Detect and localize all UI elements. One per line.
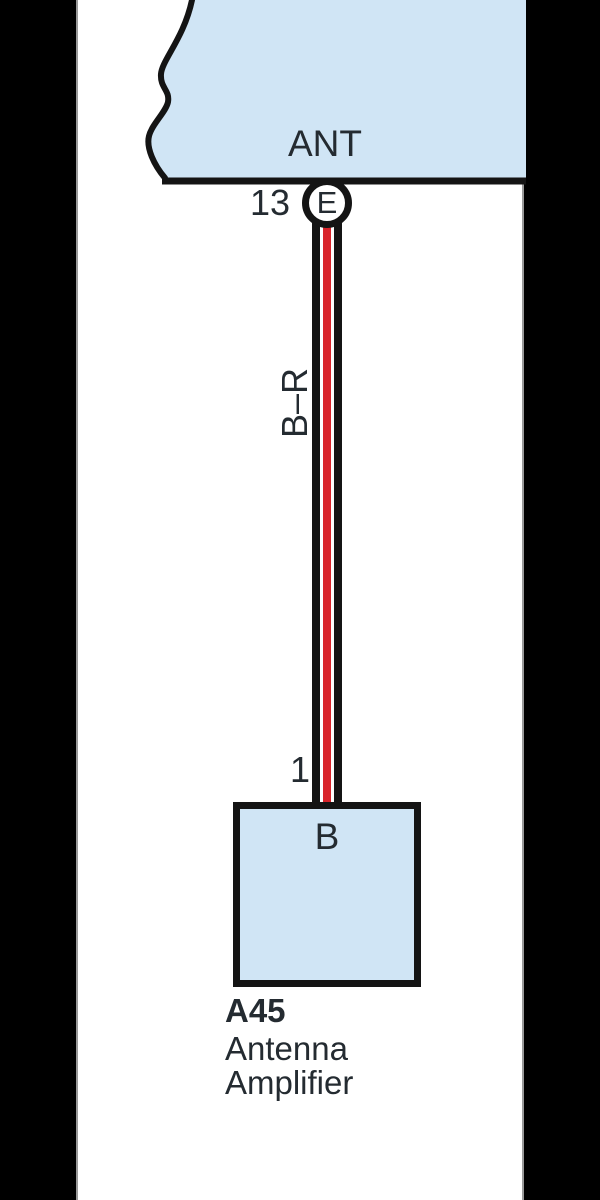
connector-e-circle: E xyxy=(302,178,352,228)
wire-color-code-label: B–R xyxy=(276,336,314,470)
diagram-canvas: ANT B–R E 13 1 B A45 Antenna Amplifier xyxy=(76,0,524,1200)
connector-pin-13-label: 13 xyxy=(220,183,290,223)
component-caption: A45 Antenna Amplifier xyxy=(225,994,353,1100)
component-name-line2: Amplifier xyxy=(225,1066,353,1100)
wire-b-r xyxy=(312,200,342,810)
component-name-line1: Antenna xyxy=(225,1032,353,1066)
terminal-b-label: B xyxy=(240,817,414,857)
connector-e-label: E xyxy=(317,185,338,221)
antenna-amplifier-box: B xyxy=(233,802,421,987)
amplifier-pin-1-label: 1 xyxy=(240,750,310,790)
component-id-label: A45 xyxy=(225,994,353,1028)
ant-component-label: ANT xyxy=(245,124,405,164)
